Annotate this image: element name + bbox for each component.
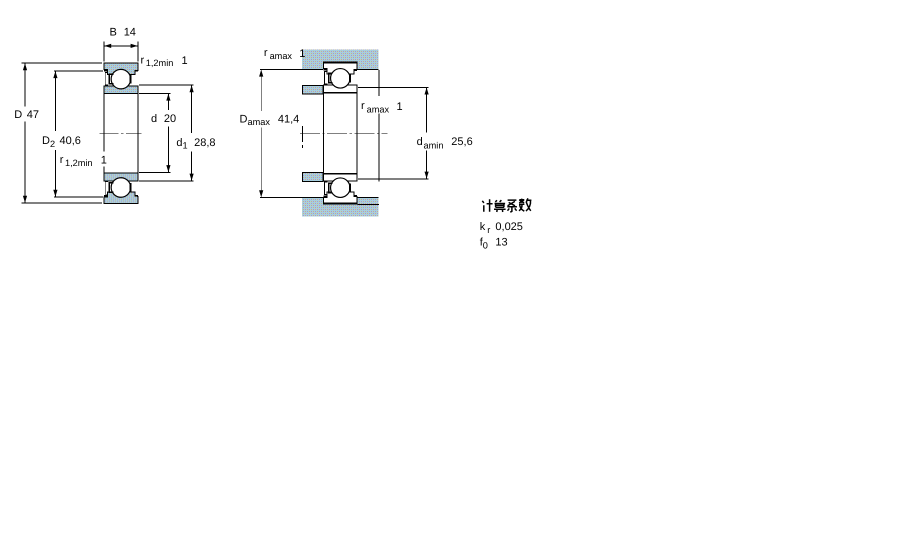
svg-text:d: d [151,113,157,125]
svg-text:1: 1 [299,48,305,60]
svg-text:d1: d1 [176,137,187,151]
svg-text:40,6: 40,6 [60,135,81,147]
svg-text:D: D [14,109,22,121]
svg-text:ramax: ramax [264,47,293,61]
svg-text:25,6: 25,6 [451,136,472,148]
svg-text:B: B [110,26,117,38]
svg-text:20: 20 [164,113,176,125]
svg-text:1: 1 [101,155,107,167]
svg-text:Damax: Damax [240,113,271,127]
svg-text:r1,2min: r1,2min [141,54,174,68]
svg-text:41,4: 41,4 [278,113,299,125]
svg-text:0,025: 0,025 [495,221,523,233]
svg-text:damin: damin [417,136,444,150]
svg-text:47: 47 [27,109,39,121]
svg-text:ramax: ramax [361,100,390,114]
svg-text:f0: f0 [480,237,488,251]
svg-text:r1,2min: r1,2min [60,154,93,168]
svg-text:D2: D2 [42,135,55,149]
svg-text:kr: kr [480,221,491,235]
svg-text:13: 13 [495,237,507,249]
svg-text:1: 1 [182,55,188,67]
svg-text:14: 14 [124,26,136,38]
svg-text:1: 1 [397,101,403,113]
svg-text:28,8: 28,8 [194,137,215,149]
